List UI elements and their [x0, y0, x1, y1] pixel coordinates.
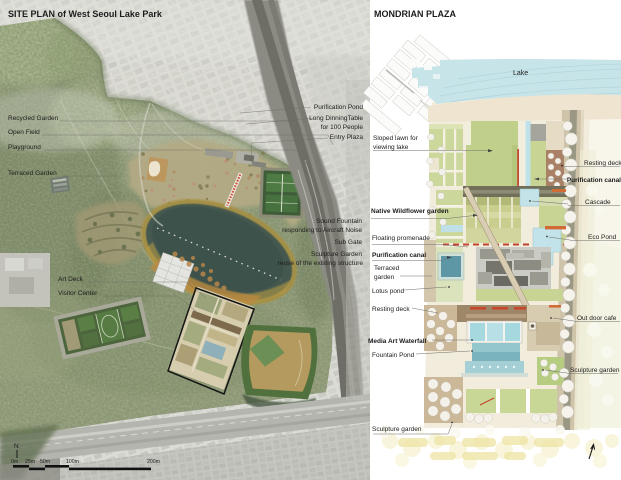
svg-text:Sculpture Garden: Sculpture Garden — [311, 251, 362, 258]
svg-text:25m: 25m — [25, 459, 35, 465]
svg-text:Sculpture garden: Sculpture garden — [570, 367, 620, 374]
svg-text:Visitor Center: Visitor Center — [58, 290, 98, 297]
svg-text:Terraced Garden: Terraced Garden — [8, 170, 57, 177]
svg-text:Fountain Pond: Fountain Pond — [372, 352, 415, 359]
svg-text:Floating promenade: Floating promenade — [372, 235, 430, 242]
svg-text:Terraced: Terraced — [374, 265, 400, 272]
svg-text:Recycled Garden: Recycled Garden — [8, 115, 59, 122]
svg-text:viewing lake: viewing lake — [373, 144, 409, 151]
svg-text:Lake: Lake — [513, 70, 528, 77]
svg-text:garden: garden — [374, 274, 395, 281]
svg-text:responding to Aircraft Noise: responding to Aircraft Noise — [282, 227, 362, 234]
svg-text:Media Art Waterfall: Media Art Waterfall — [368, 338, 427, 345]
svg-text:0m: 0m — [11, 459, 18, 465]
svg-text:Playground: Playground — [8, 144, 41, 151]
svg-text:Cascade: Cascade — [585, 199, 611, 206]
svg-text:Sound Fountain: Sound Fountain — [316, 218, 362, 225]
svg-text:N: N — [14, 443, 19, 450]
svg-text:Entry Plaza: Entry Plaza — [330, 134, 364, 141]
svg-text:Resting deck: Resting deck — [584, 160, 621, 167]
svg-text:Purification canal: Purification canal — [372, 252, 426, 259]
svg-text:Eco Pond: Eco Pond — [588, 234, 617, 241]
svg-text:Art Deck: Art Deck — [58, 276, 84, 283]
svg-text:Out door cafe: Out door cafe — [577, 315, 617, 322]
svg-text:Lotus pond: Lotus pond — [372, 288, 405, 295]
svg-text:Resting deck: Resting deck — [372, 306, 410, 313]
svg-text:for 100 People: for 100 People — [321, 124, 364, 131]
svg-text:Sculpture garden: Sculpture garden — [372, 426, 422, 433]
svg-text:Sloped lawn for: Sloped lawn for — [373, 135, 419, 142]
svg-text:Open Field: Open Field — [8, 129, 40, 136]
svg-text:100m: 100m — [66, 459, 79, 465]
svg-text:200m: 200m — [147, 459, 160, 465]
svg-text:50m: 50m — [40, 459, 50, 465]
svg-text:Sub Gate: Sub Gate — [335, 239, 363, 246]
svg-text:Purification Pond: Purification Pond — [314, 104, 364, 111]
svg-text:MONDRIAN PLAZA: MONDRIAN PLAZA — [374, 9, 456, 19]
svg-text:Long DinningTable: Long DinningTable — [309, 115, 363, 122]
svg-text:reuse of the existing structur: reuse of the existing structure — [278, 260, 364, 267]
svg-text:Native Wildflower garden: Native Wildflower garden — [371, 208, 449, 215]
svg-text:SITE PLAN of West Seoul Lake P: SITE PLAN of West Seoul Lake Park — [8, 9, 163, 19]
svg-text:Purification canal: Purification canal — [567, 177, 621, 184]
